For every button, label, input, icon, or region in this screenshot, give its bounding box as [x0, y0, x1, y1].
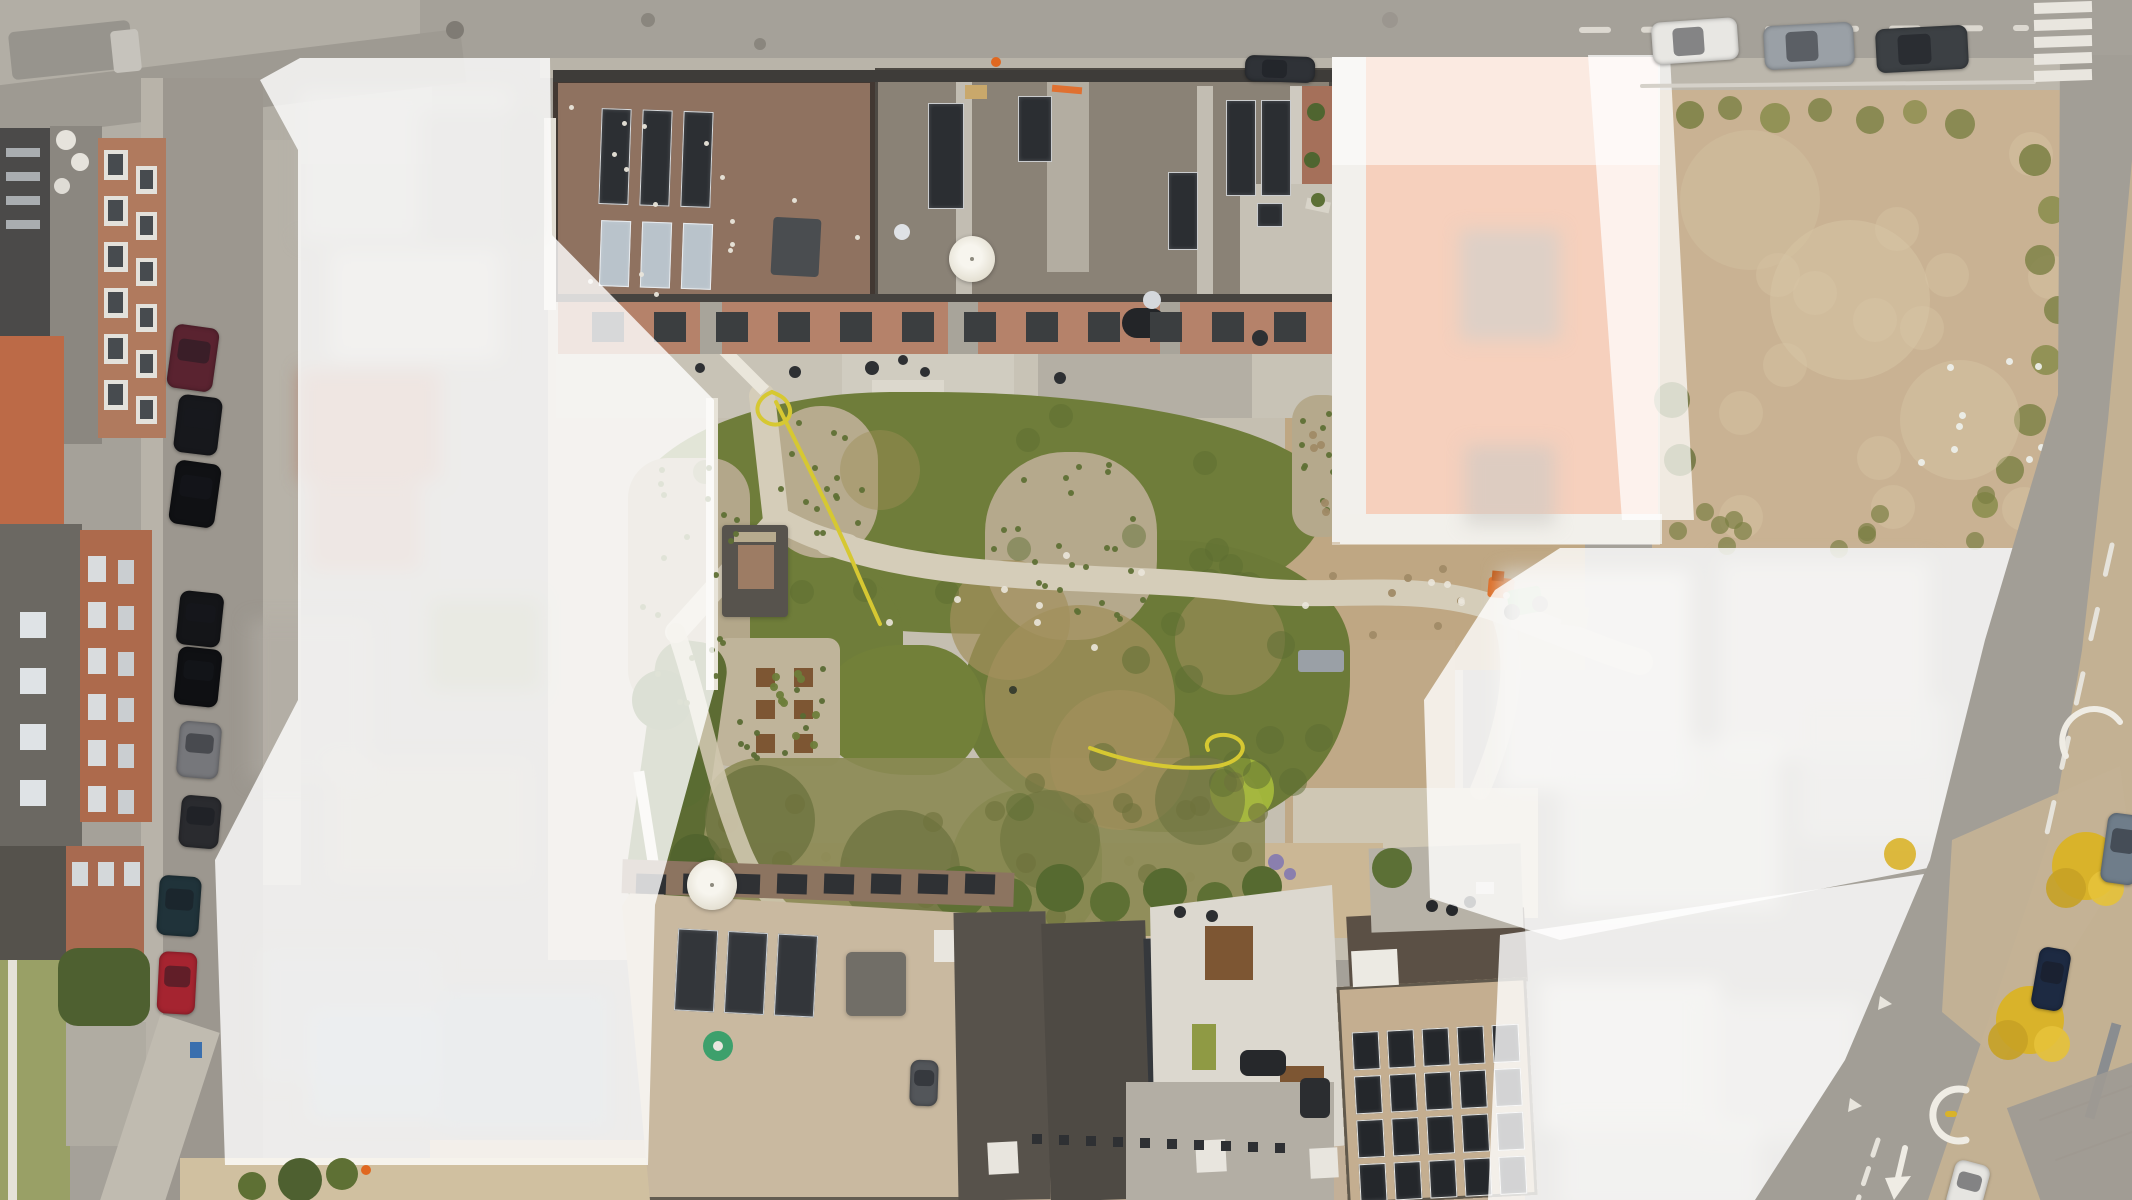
cone-orange [361, 1165, 371, 1175]
tree-yellow-1b [2046, 868, 2086, 908]
car-glass [179, 474, 213, 500]
parked-car-maroon [166, 323, 220, 393]
parked-car-black-1 [173, 394, 224, 457]
parked-car-bluegray-road [2099, 812, 2132, 886]
zebra-crossing [2034, 18, 2092, 31]
parked-car-black-3 [175, 590, 224, 648]
parked-car-teal [156, 875, 202, 938]
bush-strip-bl-1 [278, 1158, 322, 1200]
parked-car-black-4 [173, 646, 223, 708]
car-glass [183, 407, 215, 430]
car-glass [914, 1070, 934, 1086]
bush-strip-bl-3 [238, 1172, 266, 1200]
zebra-crossing [2034, 69, 2092, 82]
car-glass [183, 659, 215, 682]
parked-car-silver-top [1763, 22, 1855, 71]
parked-car-white-road [1944, 1158, 1992, 1200]
parked-car-red [156, 951, 197, 1015]
zebra-crossing [2034, 52, 2092, 65]
parked-car-darkgray-top [1875, 25, 1969, 74]
tree-yellow-3 [1884, 838, 1916, 870]
tree-yellow-2c [2034, 1026, 2070, 1062]
parked-car-dark [178, 794, 222, 849]
tree-yellow-2b [1988, 1020, 2028, 1060]
car-glass [1261, 60, 1287, 79]
car-glass [186, 806, 215, 826]
car-glass [184, 733, 214, 754]
car-glass [165, 888, 195, 910]
aerial-photo: Aerial drone photo of a residential bloc… [0, 0, 2132, 1200]
vehicles-trees-layer [0, 0, 2132, 1200]
parked-suv-mid-top [1245, 55, 1316, 83]
car-glass [1955, 1170, 1983, 1193]
parked-car-darkblue-road [2030, 946, 2072, 1013]
bush-strip-bl-2 [326, 1158, 358, 1190]
car-glass [164, 965, 191, 987]
truck-cab [110, 29, 142, 74]
car-glass [177, 338, 211, 364]
parked-car-black-2 [168, 459, 222, 529]
car-glass [1672, 26, 1705, 57]
corner-roof [2007, 1057, 2132, 1200]
car-courtyard-gray [909, 1060, 939, 1107]
car-glass [1897, 34, 1932, 66]
car-glass [1785, 31, 1819, 63]
car-glass [185, 602, 217, 623]
zebra-crossing [2034, 35, 2092, 48]
parked-car-white-top [1651, 17, 1740, 65]
car-glass [2040, 960, 2065, 985]
parked-car-gray [176, 720, 223, 779]
zebra-crossing [2034, 1, 2092, 14]
car-glass [2109, 828, 2132, 855]
